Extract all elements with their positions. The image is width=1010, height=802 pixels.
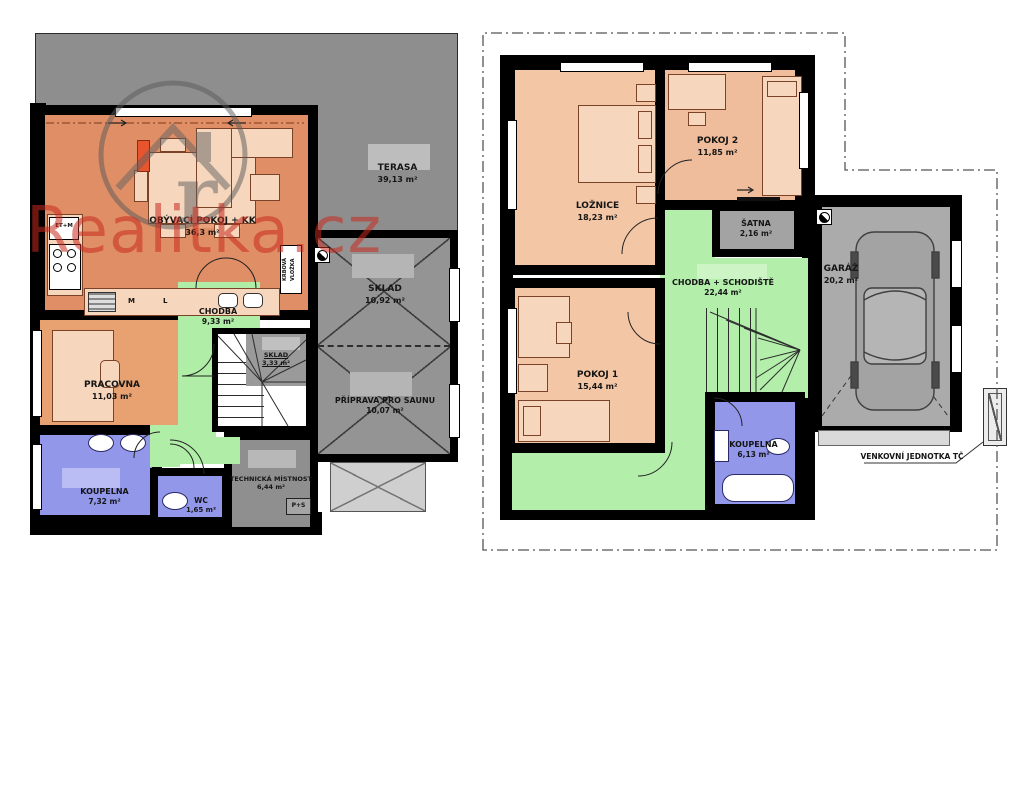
room-label-sklad-small: SKLAD3,33 m² [246,351,306,368]
room-label-terasa: TERASA39,13 m² [340,163,455,185]
room-label-technicka: TECHNICKÁ MÍSTNOST6,44 m² [226,475,316,492]
kitchen-l-label: L [163,297,167,305]
watermark: Realitka.cz [26,194,382,268]
room-label-koupelna: KOUPELNA7,32 m² [52,487,157,507]
room-label-satna: ŠATNA2,16 m² [714,219,798,239]
room-label-wc: WC1,65 m² [176,496,226,515]
floorplan-canvas: ET+M M L KRBOVÁ VLOŽKA [0,0,1010,802]
room-label-garaz: GARÁŽ20,2 m² [808,264,874,286]
room-label-pokoj2: POKOJ 211,85 m² [670,136,765,158]
room-label-sauna: PŘÍPRAVA PRO SAUNU10,07 m² [315,396,455,416]
p-s-label: P+S [287,502,310,509]
room-label-pokoj1: POKOJ 115,44 m² [550,370,645,392]
room-label-pracovna: PRACOVNA11,03 m² [62,380,162,402]
room-label-chodba: CHODBA9,33 m² [172,307,264,327]
room-label-up-chodba: CHODBA + SCHODIŠTĚ22,44 m² [648,278,798,298]
kitchen-m-label: M [128,297,135,305]
room-label-koupelna2: KOUPELNA6,13 m² [706,440,801,460]
room-label-loznice: LOŽNICE18,23 m² [550,201,645,223]
car-icon [851,232,939,410]
room-label-sklad: SKLAD10,92 m² [340,284,430,306]
annotation-venkovni-jednotka: VENKOVNÍ JEDNOTKA TČ [858,452,966,462]
